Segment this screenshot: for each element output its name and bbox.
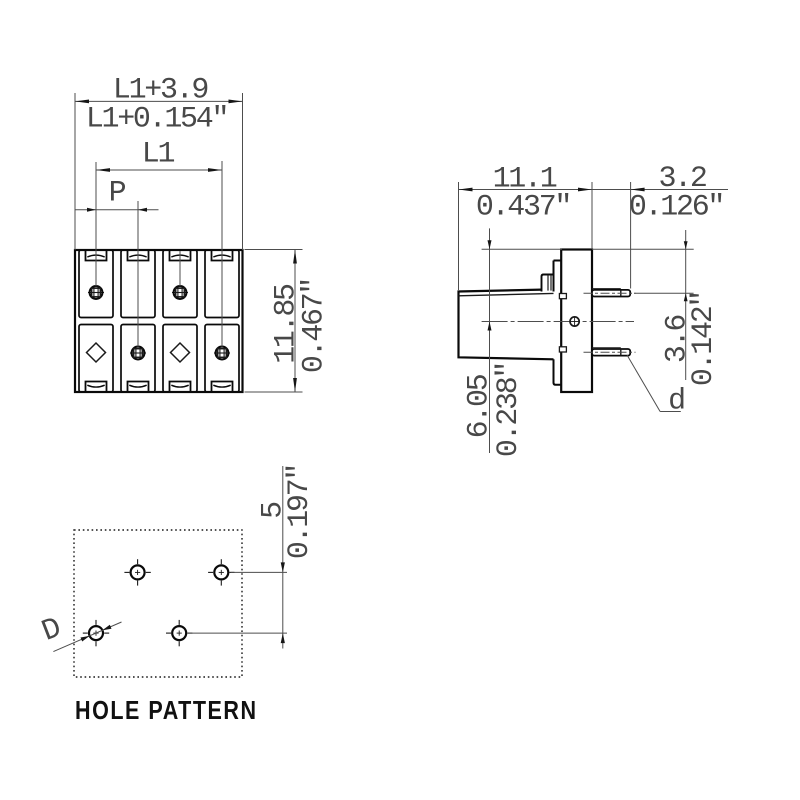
svg-text:0.467": 0.467" [298, 279, 332, 373]
svg-text:HOLE PATTERN: HOLE PATTERN [75, 697, 258, 725]
svg-text:0.238": 0.238" [492, 363, 526, 457]
svg-text:0.142": 0.142" [687, 292, 721, 386]
svg-text:d: d [668, 385, 684, 419]
svg-text:0.126": 0.126" [629, 191, 723, 225]
svg-text:L1: L1 [142, 137, 175, 171]
svg-text:0.437": 0.437" [476, 191, 570, 225]
svg-text:P: P [109, 177, 126, 211]
svg-text:0.197": 0.197" [283, 465, 317, 559]
svg-text:L1+0.154": L1+0.154" [86, 103, 227, 137]
